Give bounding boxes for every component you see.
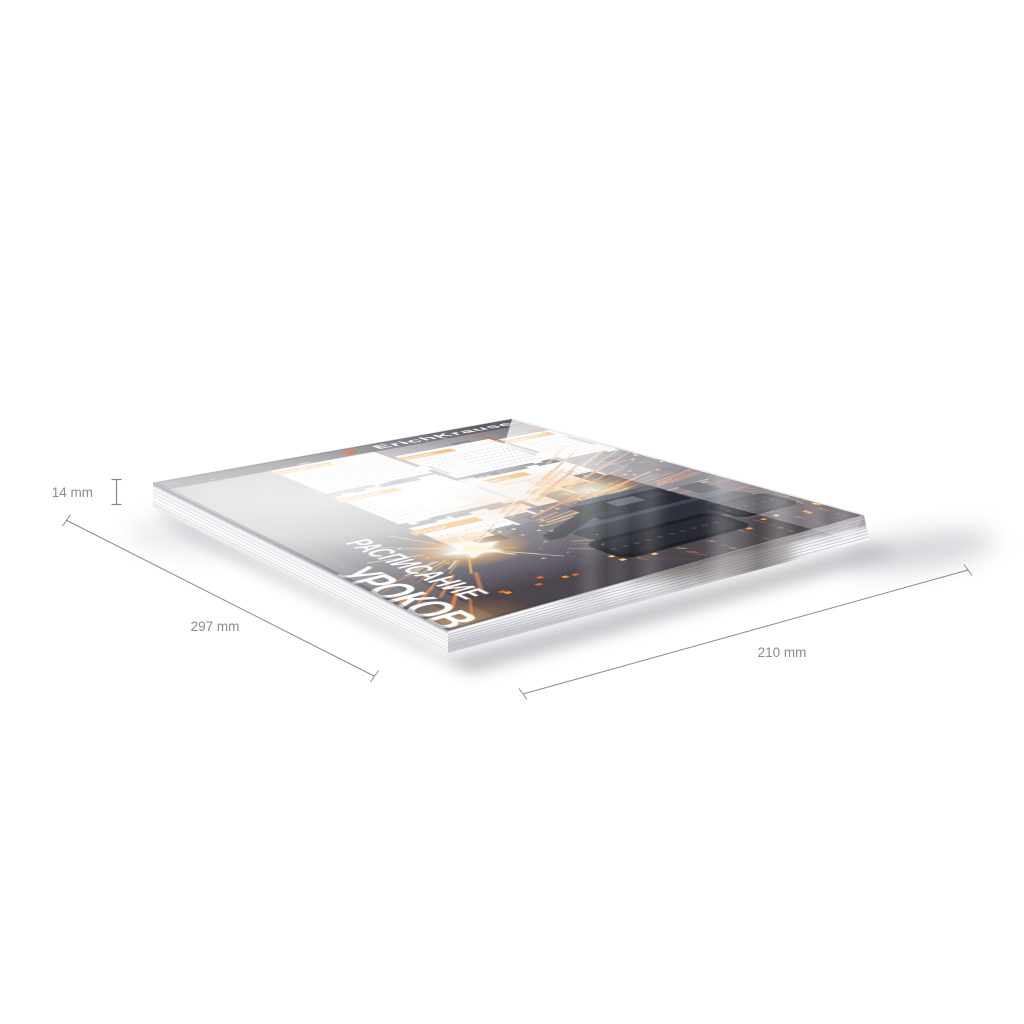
svg-text:297 mm: 297 mm — [191, 619, 240, 634]
svg-text:14 mm: 14 mm — [52, 485, 93, 500]
svg-text:210 mm: 210 mm — [758, 645, 807, 660]
